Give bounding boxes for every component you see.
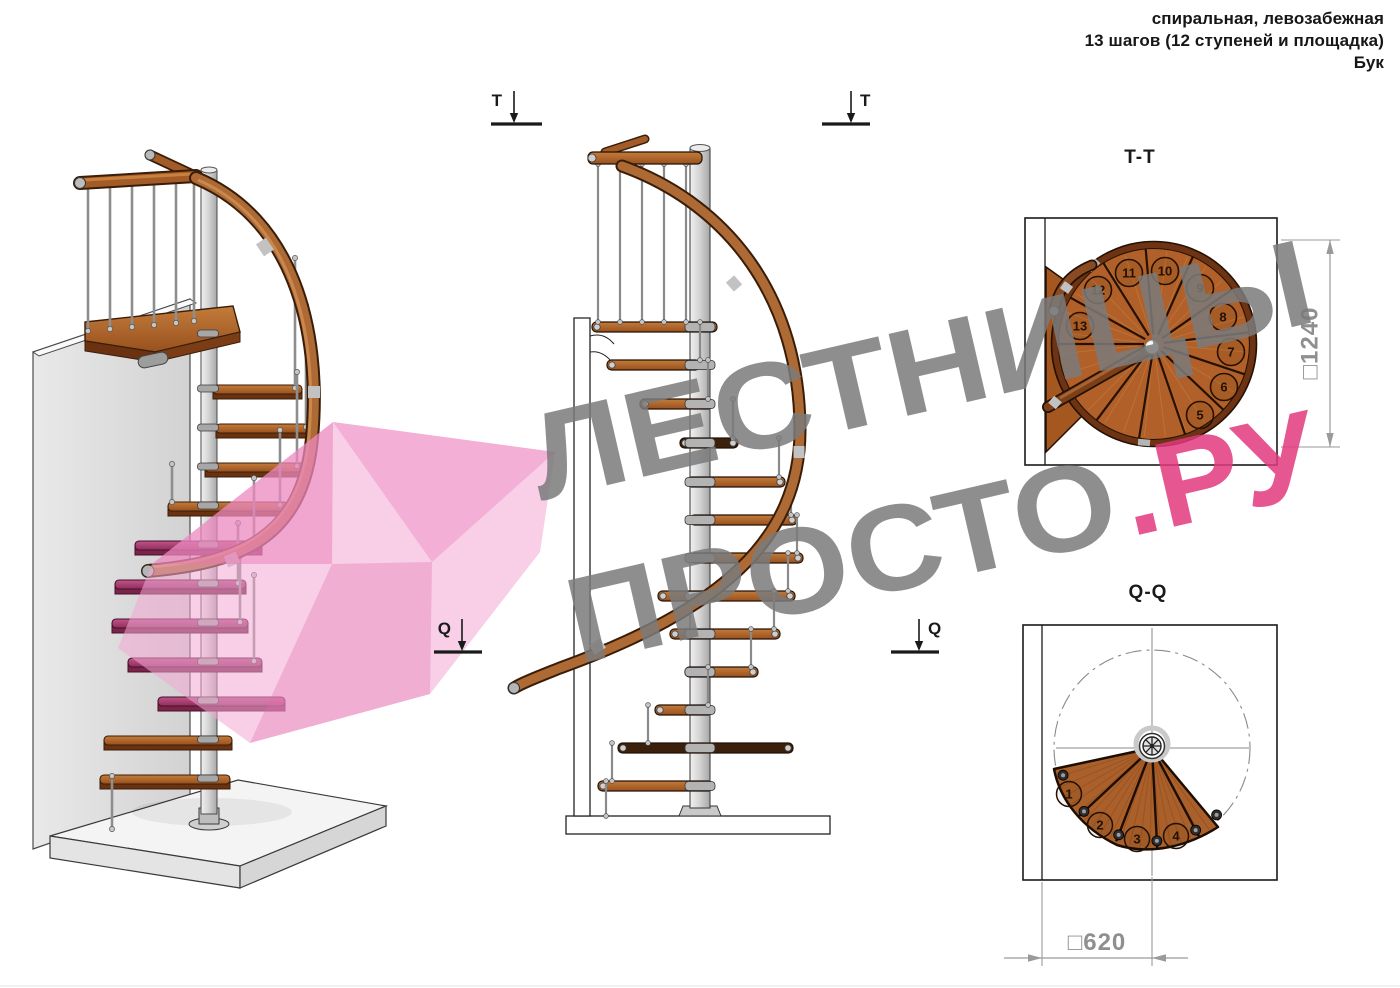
step-number-badge: 6 bbox=[1211, 374, 1238, 401]
drawing-page: T-T bbox=[0, 0, 1400, 988]
column-collar bbox=[198, 502, 219, 509]
title-line-1: спиральная, левозабежная bbox=[1085, 8, 1384, 30]
qq-column-hub bbox=[1136, 728, 1168, 760]
tt-title: T-T bbox=[1124, 147, 1156, 168]
step-number-badge: 2 bbox=[1088, 813, 1113, 838]
section-arrow-icon bbox=[510, 113, 518, 123]
title-line-3: Бук bbox=[1085, 52, 1384, 74]
column-collar bbox=[685, 744, 715, 753]
step-number-badge: 4 bbox=[1164, 824, 1189, 849]
qq-dimension-label: □620 bbox=[1068, 929, 1127, 956]
section-marker-t-left: T bbox=[491, 91, 542, 124]
section-marker-q-right: Q bbox=[891, 619, 941, 652]
step-number: 2 bbox=[1096, 818, 1103, 833]
step-number: 6 bbox=[1220, 380, 1227, 395]
section-marker-label: T bbox=[860, 91, 871, 110]
column-collar bbox=[198, 385, 219, 392]
step-number: 3 bbox=[1133, 832, 1140, 847]
qq-title: Q-Q bbox=[1129, 582, 1168, 603]
column-collar bbox=[685, 706, 715, 715]
section-arrow-icon bbox=[847, 113, 855, 123]
top-railing-3d bbox=[75, 150, 198, 189]
qq-dimension: □620 bbox=[1004, 877, 1188, 966]
step-number: 1 bbox=[1065, 787, 1072, 802]
column-collar bbox=[198, 330, 219, 337]
column-collar bbox=[198, 736, 219, 743]
step-number-badge: 1 bbox=[1057, 782, 1082, 807]
section-marker-label: Q bbox=[928, 619, 941, 638]
column-collar bbox=[198, 424, 219, 431]
step-3d bbox=[213, 385, 302, 394]
column-collar bbox=[198, 775, 219, 782]
step-number-badge: 3 bbox=[1125, 827, 1150, 852]
title-line-2: 13 шагов (12 ступеней и площадка) bbox=[1085, 30, 1384, 52]
column-collar bbox=[685, 668, 715, 677]
column-collar bbox=[198, 463, 219, 470]
section-marker-t-right: T bbox=[822, 91, 871, 124]
column-collar bbox=[685, 782, 715, 791]
title-block: спиральная, левозабежная 13 шагов (12 ст… bbox=[1085, 8, 1384, 74]
step-number: 4 bbox=[1172, 829, 1180, 844]
section-marker-label: T bbox=[492, 91, 503, 110]
top-railing-elevation bbox=[588, 139, 702, 164]
section-qq: Q-Q 1234 bbox=[1004, 582, 1277, 966]
section-arrow-icon bbox=[915, 641, 923, 651]
drawing-canvas: T-T bbox=[0, 0, 1400, 988]
section-marker-label: Q bbox=[438, 619, 451, 638]
